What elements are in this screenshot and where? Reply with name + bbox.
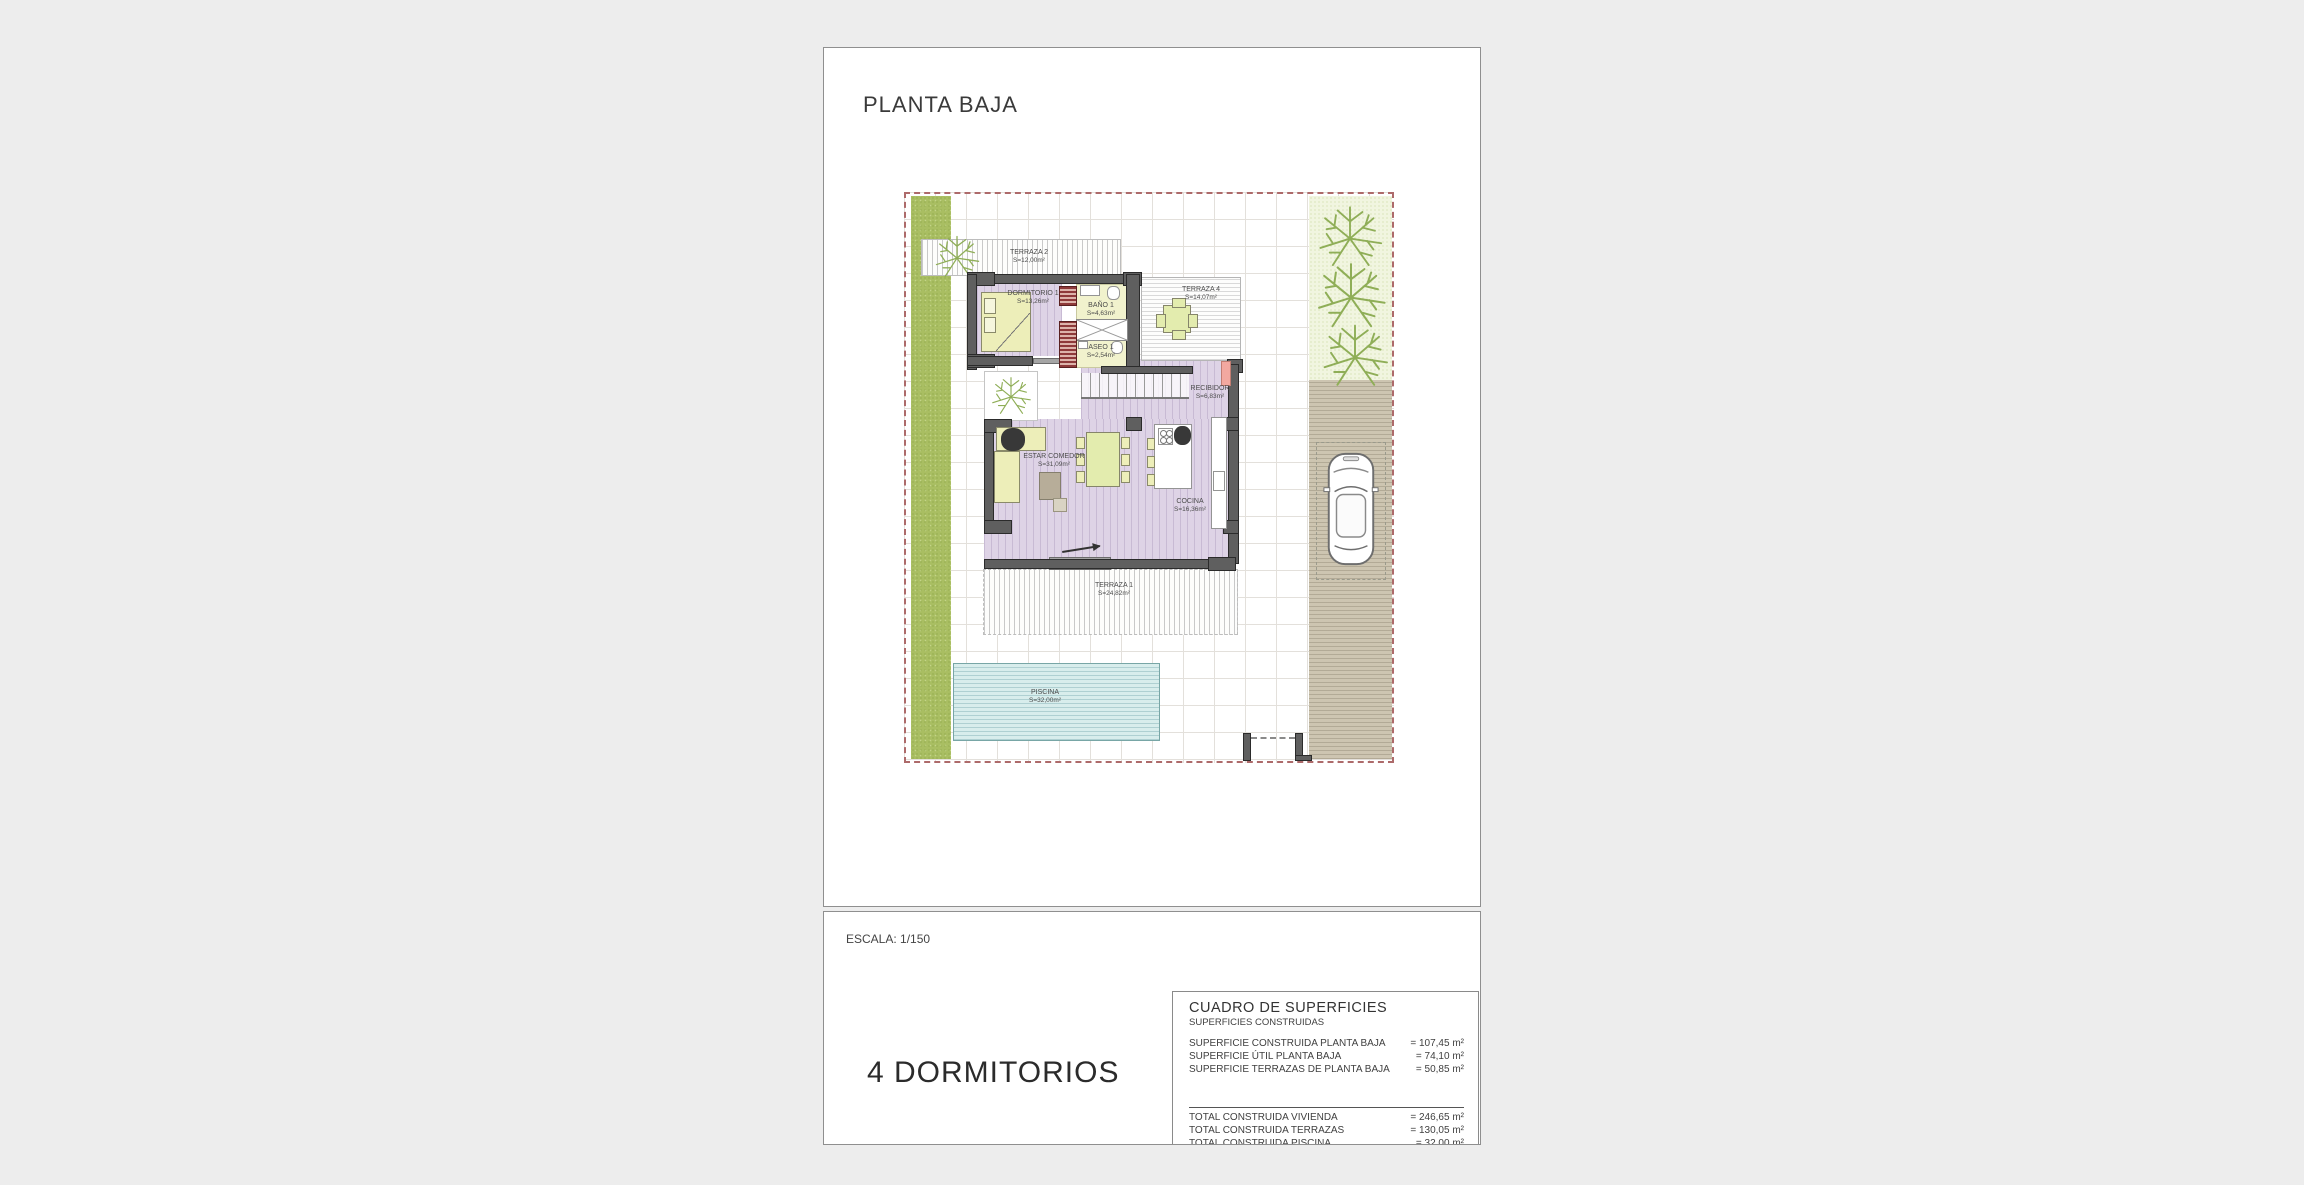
- room-label-cocina: COCINAS=16,36m²: [1174, 497, 1206, 515]
- toilet: [1107, 286, 1120, 300]
- wall: [1101, 366, 1193, 374]
- surfaces-rows: SUPERFICIE CONSTRUIDA PLANTA BAJA= 107,4…: [1189, 1037, 1464, 1076]
- table-row: SUPERFICIE CONSTRUIDA PLANTA BAJA= 107,4…: [1189, 1037, 1464, 1050]
- chair: [1121, 471, 1130, 483]
- room-label-aseo1: ASEO 1S=2,54m²: [1087, 343, 1115, 361]
- table-row: SUPERFICIE ÚTIL PLANTA BAJA= 74,10 m²: [1189, 1050, 1464, 1063]
- wall: [967, 356, 1033, 366]
- car-icon: [1322, 450, 1380, 568]
- table-row: TOTAL CONSTRUIDA PISCINA= 32,00 m²: [1189, 1137, 1464, 1145]
- wardrobe: [1059, 321, 1077, 368]
- room-label-terraza4: TERRAZA 4S=14,07m²: [1182, 285, 1220, 303]
- stool: [1147, 456, 1155, 468]
- room-label-recibidor: RECIBIDORS=6,83m²: [1191, 384, 1230, 402]
- dining-table: [1086, 432, 1120, 487]
- entrance-door: [1221, 361, 1231, 386]
- tree-icon: [1315, 316, 1395, 396]
- gate-post-foot: [1295, 755, 1312, 761]
- surfaces-table: CUADRO DE SUPERFICIES SUPERFICIES CONSTR…: [1172, 991, 1479, 1145]
- room-label-terraza2: TERRAZA 2S=12,00m²: [1010, 248, 1048, 266]
- side-table: [1053, 498, 1067, 512]
- sofa: [994, 451, 1020, 503]
- terrace-1: [983, 569, 1238, 635]
- wall: [1228, 364, 1239, 564]
- wardrobe: [1059, 286, 1077, 306]
- wall: [984, 559, 1234, 569]
- tree-icon: [987, 372, 1035, 420]
- room-label-piscina: PISCINAS=32,00m²: [1029, 688, 1061, 706]
- page-title: PLANTA BAJA: [863, 92, 1018, 118]
- title-block-sheet: ESCALA: 1/150 4 DORMITORIOS CUADRO DE SU…: [823, 911, 1481, 1145]
- plan-sheet: PLANTA BAJA: [823, 47, 1481, 907]
- coffee-table: [1039, 472, 1061, 500]
- oven: [1213, 471, 1225, 491]
- room-label-terraza1: TERRAZA 1S=24,82m²: [1095, 581, 1133, 599]
- stool: [1147, 438, 1155, 450]
- room-label-dormitorio1: DORMITORIO 1S=13,26m²: [1007, 289, 1058, 307]
- scale-label: ESCALA: 1/150: [846, 932, 930, 946]
- chair: [1076, 471, 1085, 483]
- chair: [1121, 437, 1130, 449]
- surfaces-totals: TOTAL CONSTRUIDA VIVIENDA= 246,65 m² TOT…: [1189, 1111, 1464, 1145]
- table-row: SUPERFICIE TERRAZAS DE PLANTA BAJA= 50,8…: [1189, 1063, 1464, 1076]
- gate-post: [1243, 733, 1251, 761]
- surfaces-subtitle: SUPERFICIES CONSTRUIDAS: [1189, 1017, 1464, 1028]
- chair: [1121, 454, 1130, 466]
- site-plan: TERRAZA 2S=12,00m² DORMITORIO 1S=13,26m²…: [904, 192, 1394, 763]
- surfaces-title: CUADRO DE SUPERFICIES: [1189, 1000, 1464, 1016]
- table-row: TOTAL CONSTRUIDA VIVIENDA= 246,65 m²: [1189, 1111, 1464, 1124]
- bedrooms-title: 4 DORMITORIOS: [867, 1056, 1119, 1090]
- shower-box: [1076, 319, 1128, 341]
- staircase: [1081, 373, 1189, 399]
- wall: [1126, 274, 1140, 371]
- wall-column: [984, 520, 1012, 534]
- room-label-bano1: BAÑO 1S=4,63m²: [1087, 301, 1115, 319]
- interior-patio: [984, 371, 1038, 421]
- gate-line: [1251, 737, 1295, 739]
- garden-area-right: [1309, 196, 1392, 380]
- stool: [1147, 474, 1155, 486]
- washer: [1080, 285, 1100, 296]
- room-label-estar: ESTAR COMEDORS=31,09m²: [1023, 452, 1084, 470]
- terrace-table: [1163, 305, 1191, 333]
- wall: [984, 419, 994, 534]
- wall-column: [1208, 557, 1236, 571]
- table-row: TOTAL CONSTRUIDA TERRAZAS= 130,05 m²: [1189, 1124, 1464, 1137]
- chair: [1076, 437, 1085, 449]
- table-divider: [1189, 1107, 1464, 1108]
- plant: [1001, 428, 1025, 451]
- wall-column: [1126, 417, 1142, 431]
- sink-fixture: [1174, 426, 1191, 445]
